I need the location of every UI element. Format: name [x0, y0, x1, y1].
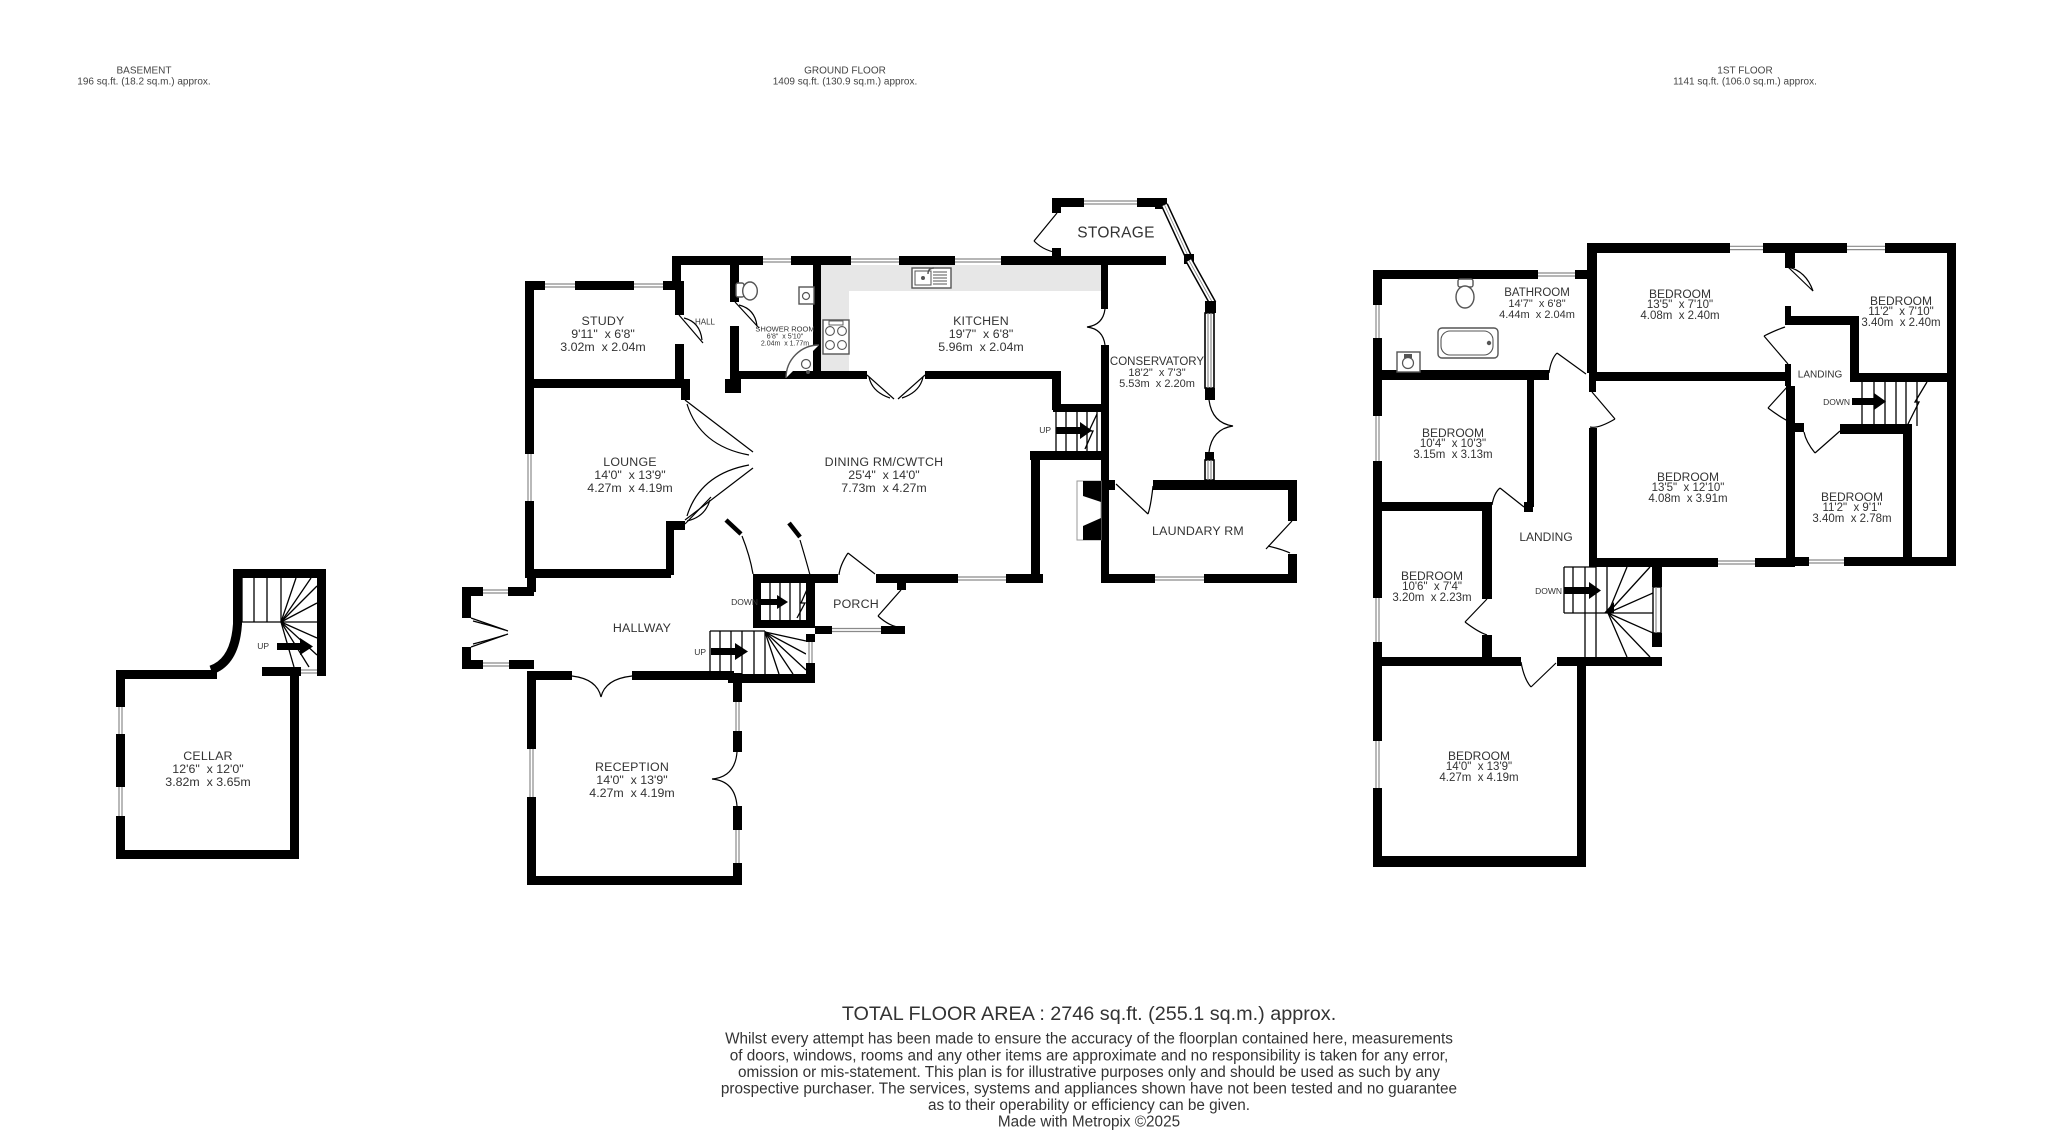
svg-text:LAUNDARY RM: LAUNDARY RM — [1152, 524, 1244, 538]
svg-text:4.08m x 2.40m: 4.08m x 2.40m — [1640, 310, 1719, 322]
svg-text:DINING RM/CWTCH: DINING RM/CWTCH — [825, 455, 944, 469]
svg-text:SHOWER ROOM: SHOWER ROOM — [755, 325, 814, 334]
svg-text:5.53m x 2.20m: 5.53m x 2.20m — [1119, 378, 1195, 390]
svg-text:DOWN: DOWN — [1823, 397, 1850, 407]
svg-text:LANDING: LANDING — [1798, 370, 1843, 381]
svg-text:4.44m x 2.04m: 4.44m x 2.04m — [1499, 309, 1575, 321]
svg-text:KITCHEN: KITCHEN — [953, 314, 1009, 328]
svg-text:LOUNGE: LOUNGE — [603, 455, 657, 469]
svg-text:Made with Metropix ©2025: Made with Metropix ©2025 — [998, 1114, 1180, 1131]
svg-text:3.15m x 3.13m: 3.15m x 3.13m — [1413, 449, 1492, 461]
svg-text:3.40m x 2.78m: 3.40m x 2.78m — [1812, 513, 1891, 525]
svg-text:HALL: HALL — [695, 318, 716, 327]
svg-text:1ST FLOOR: 1ST FLOOR — [1717, 66, 1772, 77]
svg-text:STUDY: STUDY — [582, 314, 625, 328]
svg-text:GROUND FLOOR: GROUND FLOOR — [804, 66, 886, 77]
svg-text:1409 sq.ft. (130.9 sq.m.) appr: 1409 sq.ft. (130.9 sq.m.) approx. — [773, 77, 918, 88]
svg-text:3.20m x 2.23m: 3.20m x 2.23m — [1392, 592, 1471, 604]
svg-text:UP: UP — [257, 641, 269, 651]
svg-text:14'0" x 13'9": 14'0" x 13'9" — [594, 468, 665, 482]
svg-text:Whilst every attempt has been: Whilst every attempt has been made to en… — [725, 1031, 1453, 1048]
svg-text:2.04m x 1.77m: 2.04m x 1.77m — [761, 341, 809, 348]
svg-text:4.08m x 3.91m: 4.08m x 3.91m — [1648, 493, 1727, 505]
svg-text:1141 sq.ft. (106.0 sq.m.) appr: 1141 sq.ft. (106.0 sq.m.) approx. — [1673, 77, 1817, 88]
svg-text:3.02m x 2.04m: 3.02m x 2.04m — [560, 340, 645, 354]
svg-text:UP: UP — [1039, 425, 1051, 435]
svg-text:LANDING: LANDING — [1519, 530, 1572, 544]
svg-text:9'11" x 6'8": 9'11" x 6'8" — [571, 327, 635, 341]
svg-text:of doors, windows, rooms and a: of doors, windows, rooms and any other i… — [730, 1048, 1448, 1065]
svg-text:12'6" x 12'0": 12'6" x 12'0" — [172, 762, 243, 776]
svg-text:14'0" x 13'9": 14'0" x 13'9" — [596, 773, 667, 787]
svg-text:HALLWAY: HALLWAY — [613, 621, 671, 635]
svg-text:25'4" x 14'0": 25'4" x 14'0" — [848, 468, 919, 482]
svg-text:5.96m x 2.04m: 5.96m x 2.04m — [938, 340, 1023, 354]
svg-text:STORAGE: STORAGE — [1077, 225, 1155, 242]
svg-text:6'8" x 5'10": 6'8" x 5'10" — [767, 334, 804, 341]
svg-text:CELLAR: CELLAR — [183, 749, 232, 763]
svg-text:BASEMENT: BASEMENT — [116, 66, 171, 77]
svg-text:19'7" x 6'8": 19'7" x 6'8" — [949, 327, 1014, 341]
svg-text:TOTAL FLOOR AREA : 2746 sq.ft.: TOTAL FLOOR AREA : 2746 sq.ft. (255.1 sq… — [842, 1003, 1336, 1025]
svg-text:PORCH: PORCH — [833, 597, 879, 611]
svg-text:4.27m x 4.19m: 4.27m x 4.19m — [589, 786, 674, 800]
svg-text:DOWN: DOWN — [731, 597, 758, 607]
svg-text:omission or mis-statement. Thi: omission or mis-statement. This plan is … — [738, 1064, 1440, 1081]
svg-text:4.27m x 4.19m: 4.27m x 4.19m — [1439, 772, 1518, 784]
svg-text:196 sq.ft. (18.2 sq.m.) approx: 196 sq.ft. (18.2 sq.m.) approx. — [77, 77, 210, 88]
svg-text:3.40m x 2.40m: 3.40m x 2.40m — [1861, 317, 1940, 329]
svg-text:UP: UP — [694, 647, 706, 657]
svg-text:7.73m x 4.27m: 7.73m x 4.27m — [841, 481, 926, 495]
svg-text:3.82m x 3.65m: 3.82m x 3.65m — [165, 775, 250, 789]
svg-text:as to their operability or eff: as to their operability or efficiency ca… — [928, 1097, 1250, 1114]
svg-text:DOWN: DOWN — [1535, 586, 1562, 596]
svg-text:4.27m x 4.19m: 4.27m x 4.19m — [587, 481, 672, 495]
svg-text:prospective purchaser. The ser: prospective purchaser. The services, sys… — [721, 1081, 1457, 1098]
svg-text:RECEPTION: RECEPTION — [595, 760, 669, 774]
